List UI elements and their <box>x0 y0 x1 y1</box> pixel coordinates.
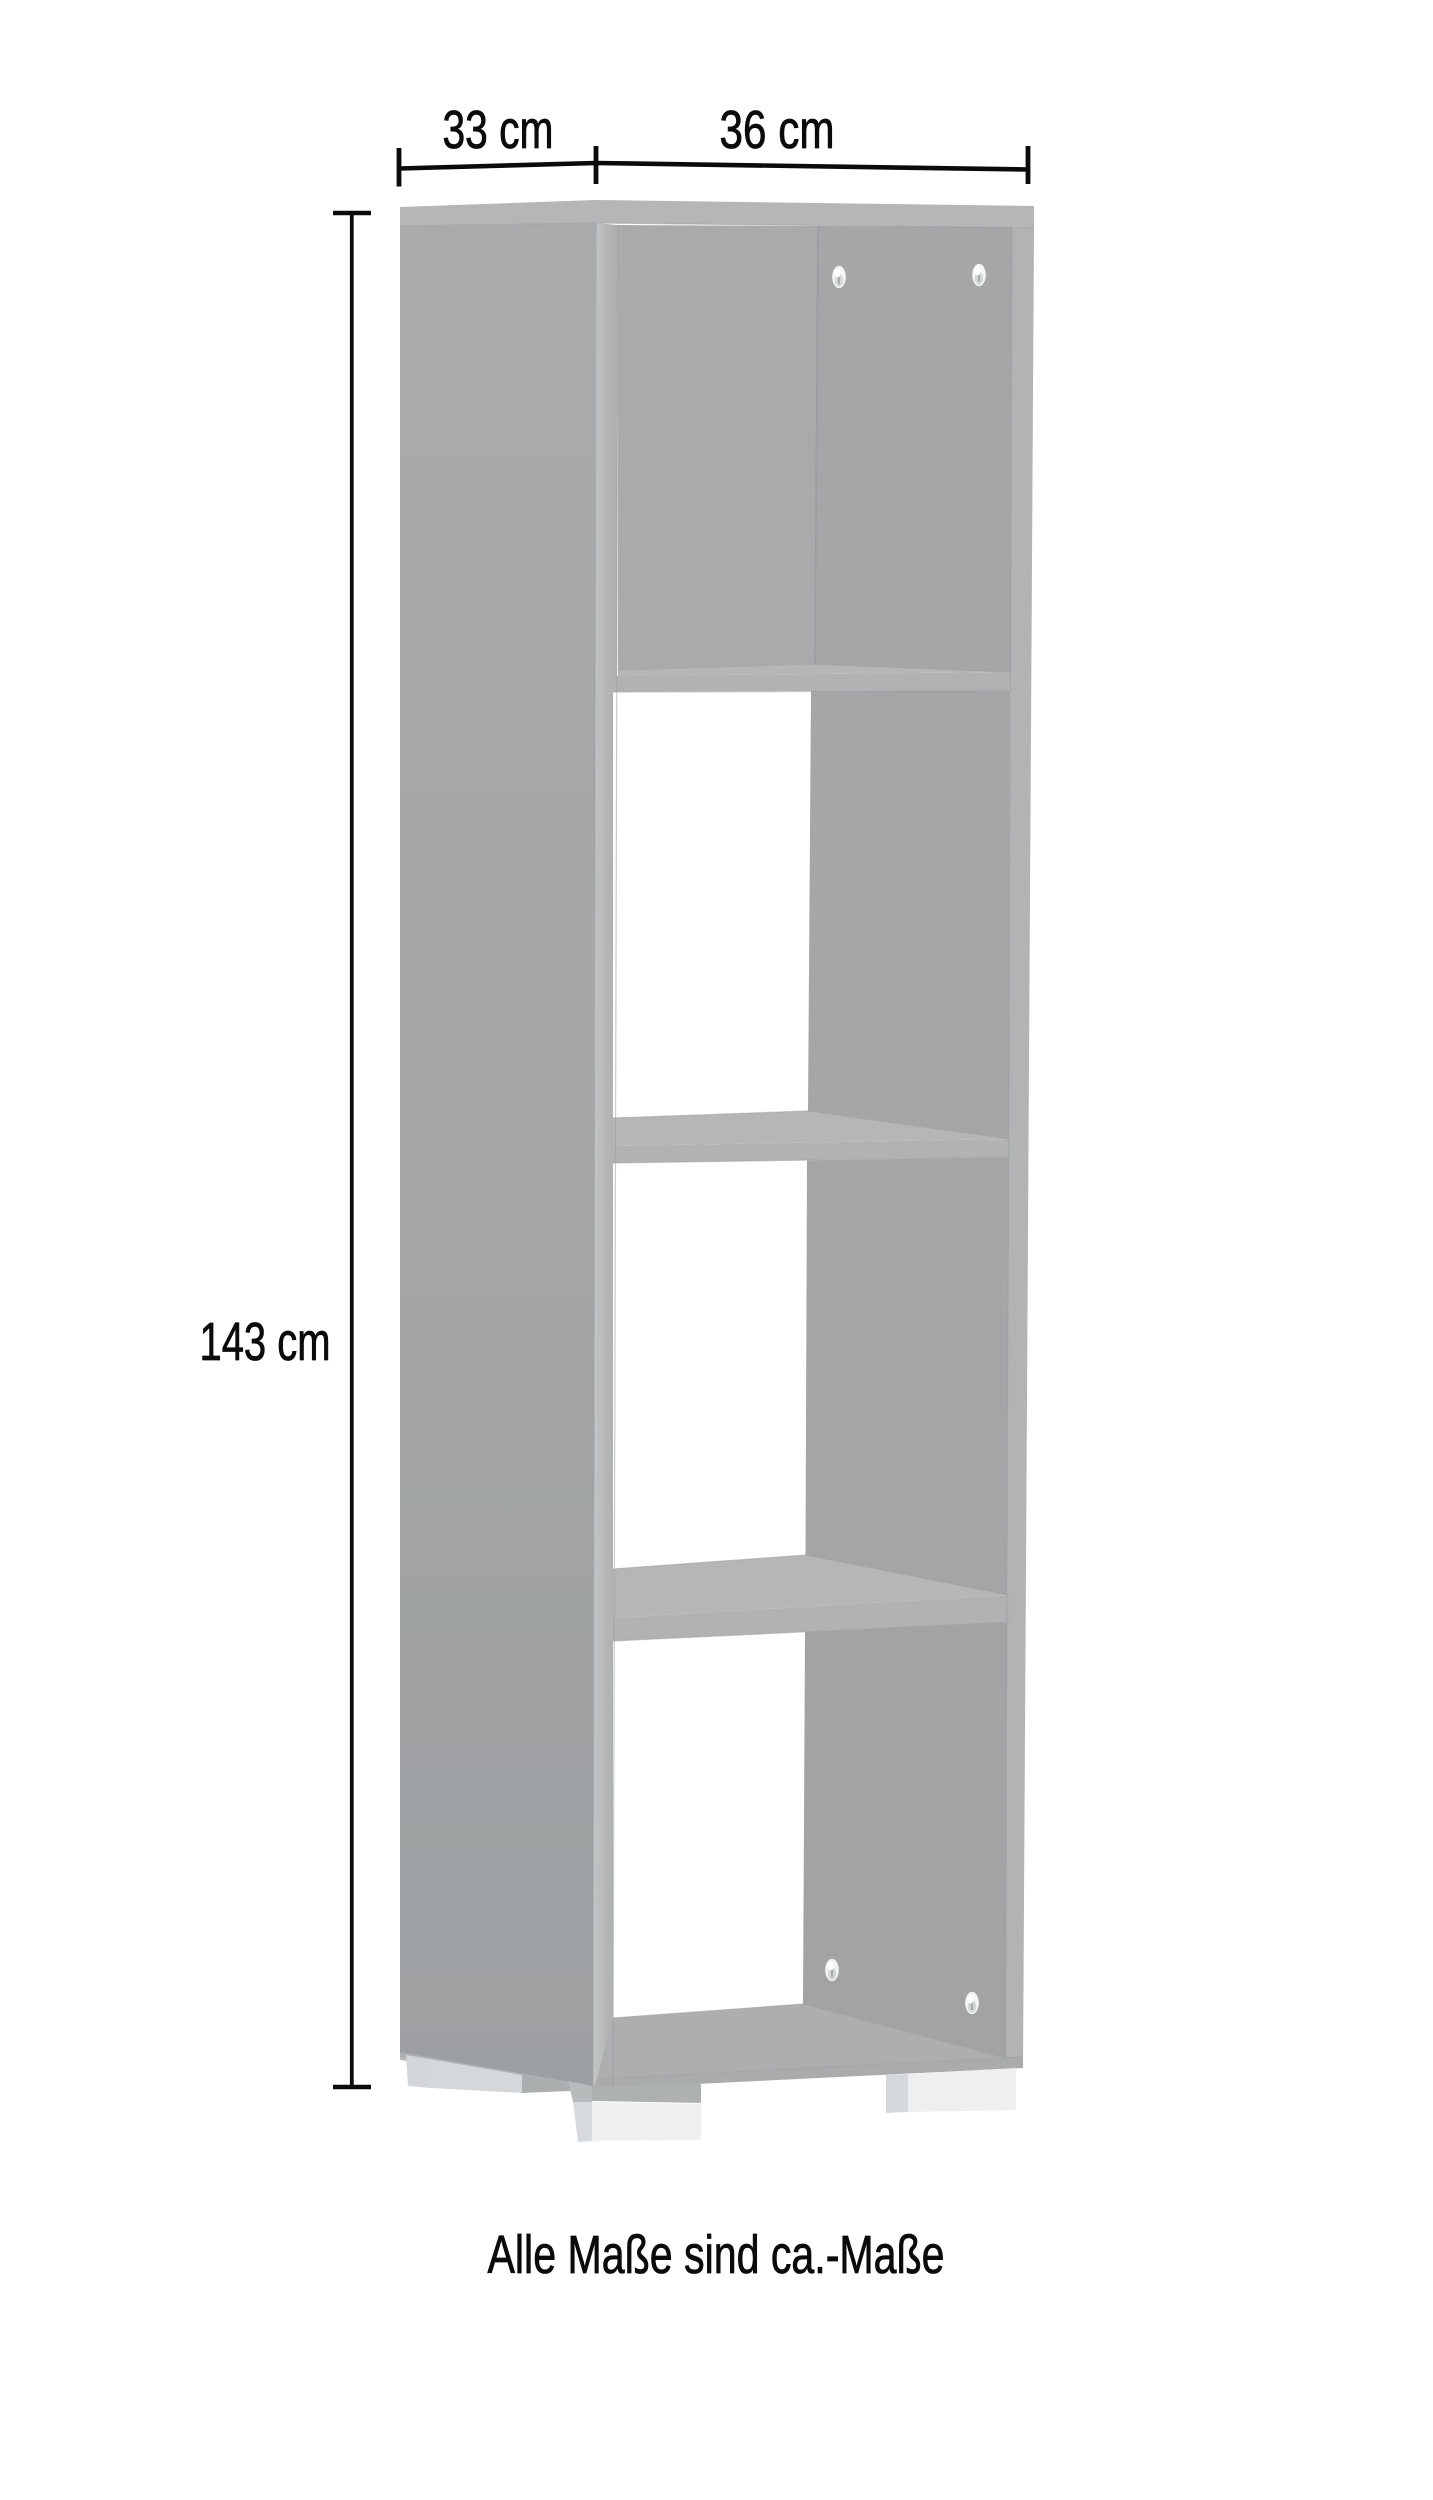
svg-text:33 cm: 33 cm <box>443 101 554 160</box>
svg-text:Alle Maße sind ca.-Maße: Alle Maße sind ca.-Maße <box>488 2226 945 2285</box>
svg-text:36 cm: 36 cm <box>720 101 835 160</box>
svg-text:143 cm: 143 cm <box>200 1313 331 1372</box>
